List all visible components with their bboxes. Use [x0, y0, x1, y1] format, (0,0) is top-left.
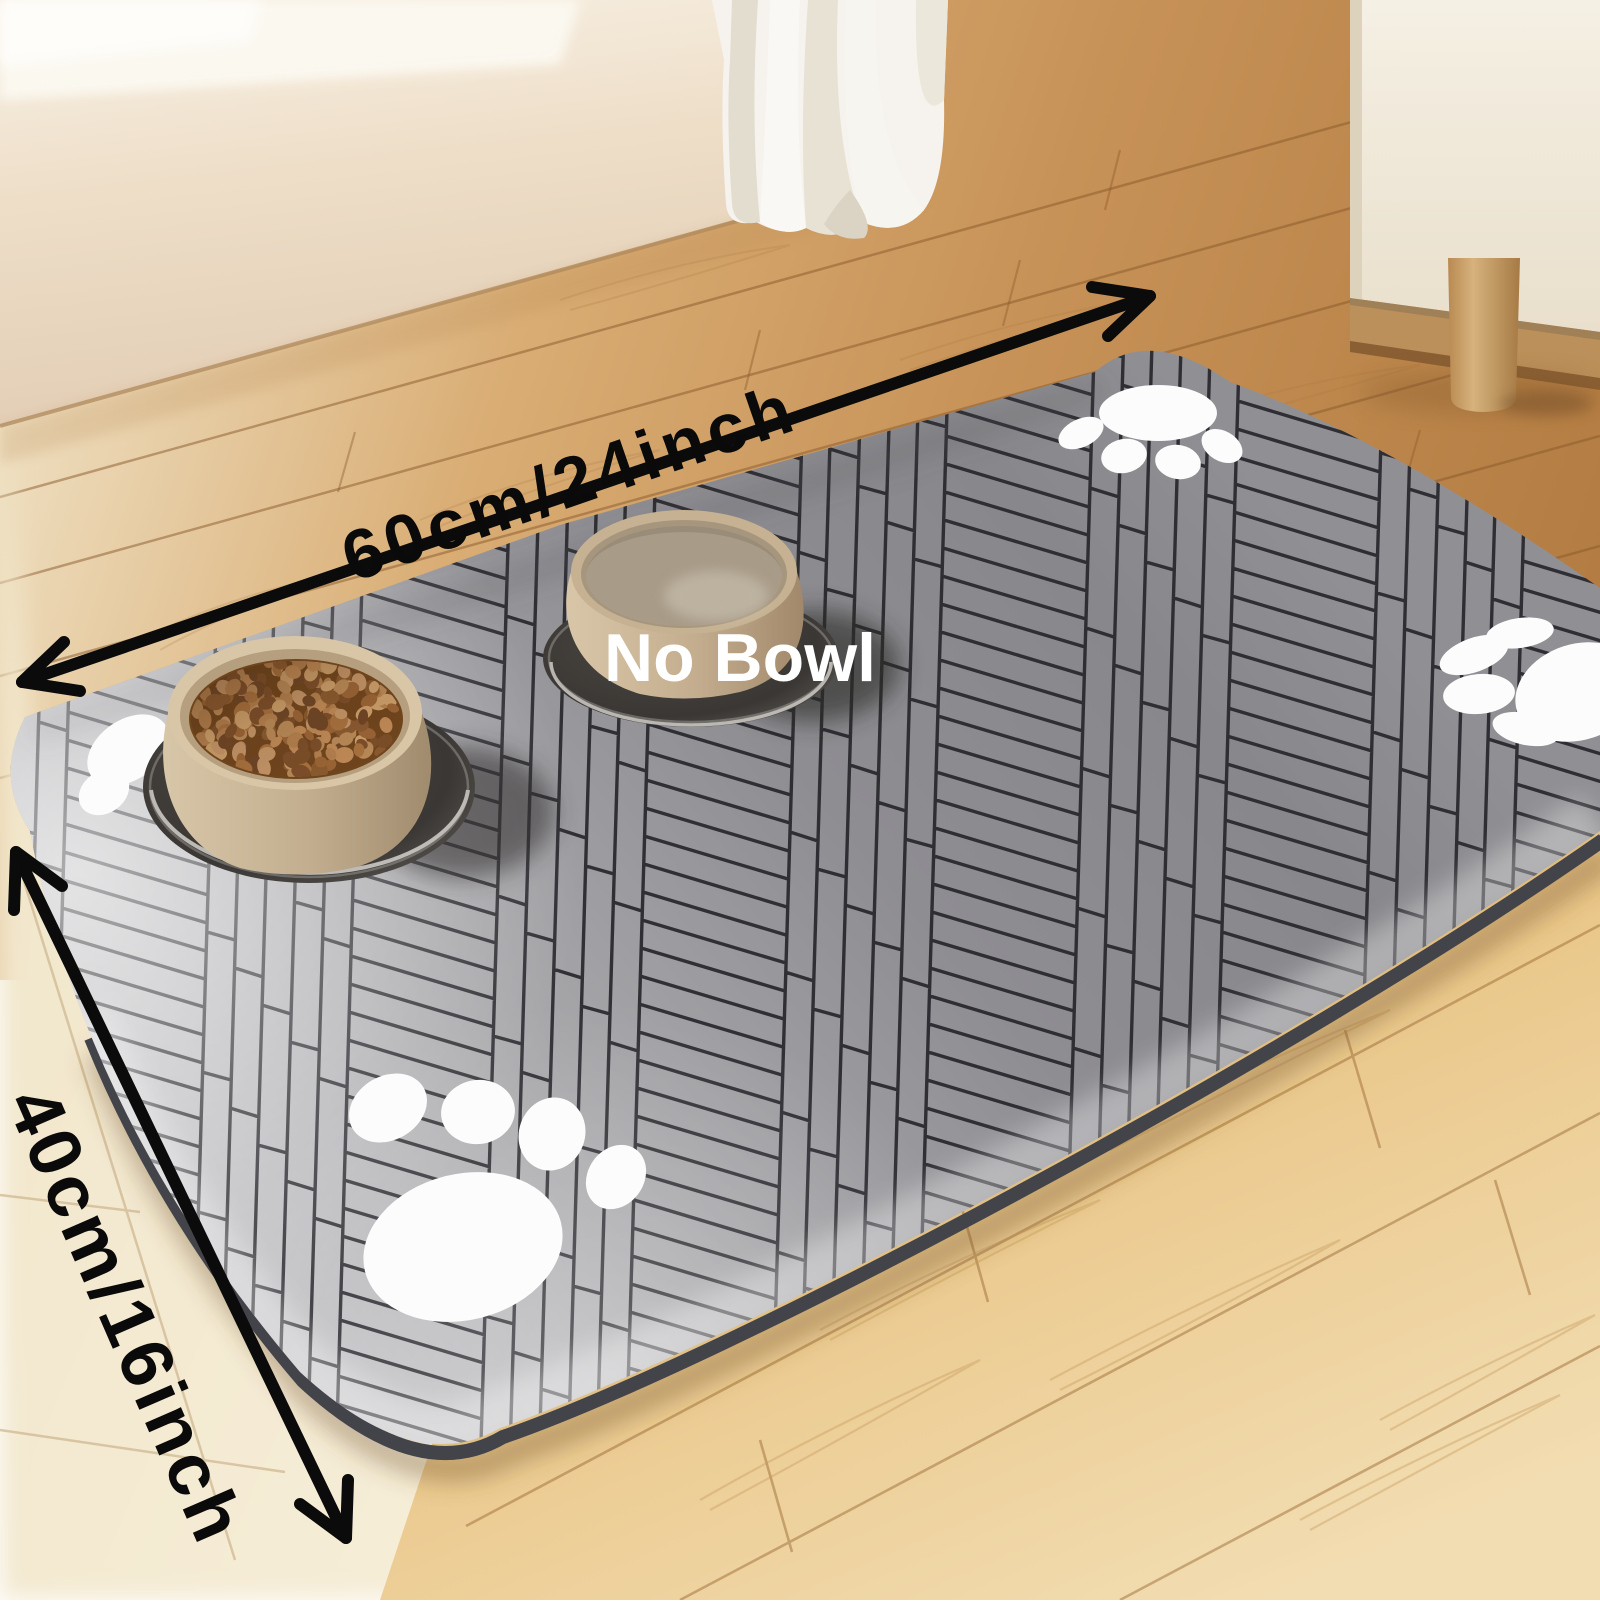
svg-text:No Bowl: No Bowl [604, 620, 876, 696]
